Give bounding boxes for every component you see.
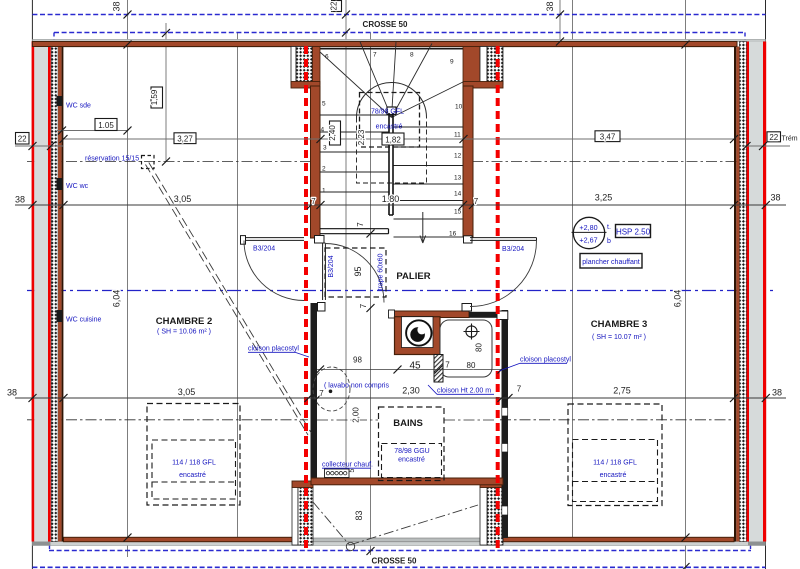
- svg-text:16: 16: [449, 231, 457, 238]
- svg-text:2: 2: [322, 166, 326, 173]
- svg-text:15: 15: [454, 209, 462, 216]
- svg-text:78/98 GGU: 78/98 GGU: [394, 448, 429, 455]
- svg-text:22: 22: [18, 135, 27, 144]
- svg-text:WC cuisine: WC cuisine: [66, 317, 102, 324]
- svg-text:( lavabo non compris: ( lavabo non compris: [324, 383, 389, 390]
- svg-text:B3/204: B3/204: [328, 255, 335, 277]
- svg-text:1.80: 1.80: [382, 194, 400, 204]
- svg-text:2,23: 2,23: [357, 129, 366, 145]
- svg-text:38: 38: [772, 388, 782, 398]
- svg-text:cloison placostyl: cloison placostyl: [248, 346, 299, 353]
- svg-text:cloison placostyl: cloison placostyl: [520, 357, 571, 364]
- svg-text:38: 38: [112, 1, 122, 11]
- svg-text:2,30: 2,30: [402, 386, 420, 396]
- svg-text:b: b: [607, 238, 611, 245]
- svg-text:38: 38: [15, 195, 25, 205]
- svg-text:38: 38: [545, 1, 555, 11]
- svg-text:cloison Ht 2.00 m: cloison Ht 2.00 m: [437, 388, 491, 395]
- svg-text:3: 3: [323, 145, 327, 152]
- svg-text:encastré: encastré: [398, 457, 425, 464]
- svg-text:CROSSE 50: CROSSE 50: [372, 557, 417, 566]
- svg-text:13: 13: [454, 175, 462, 182]
- svg-text:1: 1: [322, 188, 326, 195]
- svg-text:trape 60x60: trape 60x60: [378, 253, 385, 290]
- svg-text:8: 8: [410, 52, 414, 59]
- svg-text:38: 38: [770, 193, 780, 203]
- svg-text:encastré: encastré: [600, 472, 627, 479]
- svg-text:80: 80: [467, 361, 476, 370]
- svg-text:+2,67: +2,67: [579, 236, 597, 245]
- svg-text:2,00: 2,00: [352, 407, 361, 423]
- svg-text:7: 7: [359, 303, 368, 308]
- svg-text:WC sde: WC sde: [66, 103, 91, 110]
- svg-text:Trém: Trém: [782, 136, 798, 143]
- svg-text:1,82: 1,82: [385, 136, 401, 145]
- svg-text:CROSSE 50: CROSSE 50: [363, 20, 408, 29]
- svg-text:45: 45: [409, 361, 421, 372]
- svg-text:4: 4: [321, 127, 325, 134]
- svg-text:CHAMBRE 3: CHAMBRE 3: [591, 319, 647, 330]
- svg-text:7: 7: [474, 197, 479, 206]
- svg-text:WC wc: WC wc: [66, 183, 89, 190]
- svg-text:9: 9: [450, 59, 454, 66]
- svg-text:22: 22: [769, 133, 778, 142]
- svg-text:80: 80: [475, 343, 484, 352]
- svg-text:encastré: encastré: [179, 472, 206, 479]
- svg-text:3,25: 3,25: [595, 193, 613, 203]
- svg-text:PALIER: PALIER: [396, 271, 430, 282]
- svg-text:CHAMBRE 2: CHAMBRE 2: [156, 316, 212, 327]
- svg-text:7: 7: [517, 385, 522, 394]
- svg-text:HSP 2.50: HSP 2.50: [616, 228, 651, 237]
- svg-text:collecteur chauf.: collecteur chauf.: [322, 462, 373, 469]
- svg-text:t.: t.: [607, 224, 611, 231]
- svg-text:5: 5: [322, 101, 326, 108]
- svg-text:11: 11: [454, 132, 461, 139]
- svg-text:83: 83: [354, 510, 364, 520]
- svg-text:114 / 118 GFL: 114 / 118 GFL: [593, 460, 637, 467]
- svg-text:+2,80: +2,80: [579, 223, 597, 232]
- svg-text:2,40: 2,40: [328, 125, 337, 141]
- svg-text:78/98 GFL: 78/98 GFL: [371, 109, 404, 116]
- svg-text:6: 6: [325, 54, 329, 61]
- svg-text:98: 98: [353, 356, 362, 365]
- svg-text:7: 7: [445, 361, 450, 370]
- svg-text:3,47: 3,47: [600, 133, 616, 142]
- svg-text:réservation 15/15: réservation 15/15: [85, 156, 139, 163]
- svg-text:B3/204: B3/204: [253, 246, 275, 253]
- svg-text:3,27: 3,27: [177, 135, 193, 144]
- svg-text:38: 38: [7, 388, 17, 398]
- svg-text:5: 5: [349, 468, 356, 472]
- svg-text:95: 95: [353, 266, 363, 276]
- svg-text:BAINS: BAINS: [393, 418, 423, 429]
- svg-text:( SH = 10.07 m² ): ( SH = 10.07 m² ): [592, 334, 646, 341]
- svg-text:14: 14: [454, 191, 462, 198]
- svg-text:6,04: 6,04: [112, 290, 122, 308]
- svg-text:7: 7: [311, 197, 316, 206]
- svg-text:7: 7: [373, 52, 377, 59]
- svg-text:12: 12: [454, 153, 462, 160]
- svg-text:22: 22: [330, 1, 339, 10]
- svg-text:7: 7: [319, 389, 324, 398]
- svg-text:6,04: 6,04: [673, 290, 683, 308]
- svg-text:plancher chauffant: plancher chauffant: [582, 259, 640, 266]
- svg-text:3,05: 3,05: [174, 194, 192, 204]
- svg-text:encastré: encastré: [376, 124, 403, 131]
- svg-text:10: 10: [455, 104, 463, 111]
- svg-text:1,59: 1,59: [150, 89, 159, 105]
- svg-text:3,05: 3,05: [178, 387, 196, 397]
- svg-text:B3/204: B3/204: [502, 246, 524, 253]
- svg-text:7: 7: [356, 222, 365, 227]
- svg-text:2,75: 2,75: [613, 386, 631, 396]
- svg-text:( SH = 10.06 m² ): ( SH = 10.06 m² ): [157, 329, 211, 336]
- svg-text:1.05: 1.05: [98, 121, 114, 130]
- svg-text:114 / 118 GFL: 114 / 118 GFL: [172, 460, 216, 467]
